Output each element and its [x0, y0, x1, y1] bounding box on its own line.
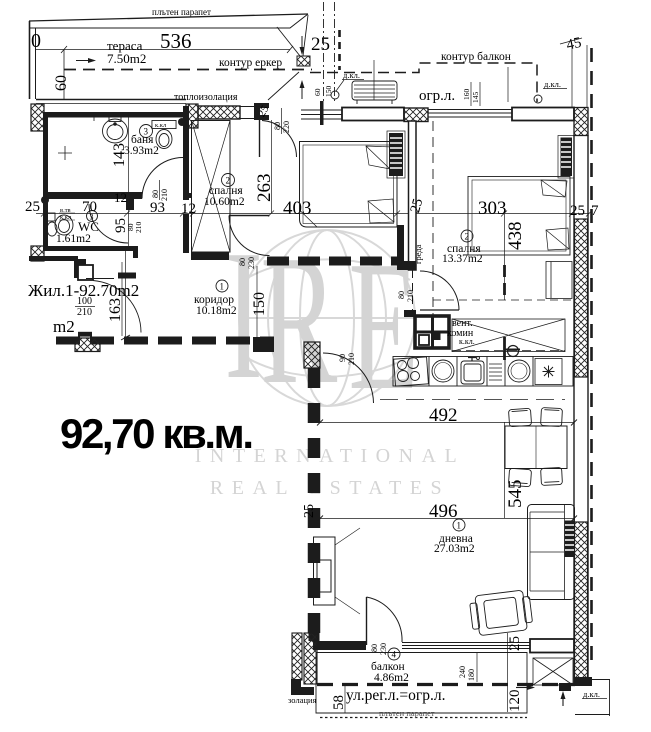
svg-text:греда: греда	[413, 244, 423, 264]
svg-text:4: 4	[392, 650, 397, 660]
svg-text:7: 7	[591, 203, 599, 219]
svg-text:контур балкон: контур балкон	[441, 51, 511, 63]
svg-text:3.93m2: 3.93m2	[124, 145, 159, 157]
svg-text:95: 95	[113, 218, 129, 233]
svg-text:80: 80	[273, 122, 282, 130]
svg-text:25: 25	[302, 504, 317, 518]
svg-text:70: 70	[82, 199, 97, 215]
svg-text:58: 58	[331, 695, 347, 710]
svg-text:143: 143	[111, 143, 128, 167]
svg-text:д.кл.: д.кл.	[583, 689, 600, 699]
svg-text:10.18m2: 10.18m2	[196, 305, 237, 317]
svg-text:150: 150	[324, 86, 333, 98]
svg-text:27.03m2: 27.03m2	[434, 543, 475, 555]
svg-text:210: 210	[406, 290, 415, 302]
svg-text:60: 60	[313, 88, 322, 96]
svg-text:92,70 кв.м.: 92,70 кв.м.	[60, 410, 252, 457]
svg-text:230: 230	[379, 643, 388, 655]
svg-text:д.кл.: д.кл.	[544, 79, 561, 89]
svg-text:438: 438	[505, 222, 526, 251]
svg-text:12: 12	[181, 201, 196, 217]
svg-text:контур еркер: контур еркер	[219, 57, 282, 69]
svg-text:545: 545	[505, 480, 526, 509]
svg-text:плътен парапет: плътен парапет	[379, 708, 435, 718]
svg-text:180: 180	[467, 669, 476, 681]
svg-text:1: 1	[220, 282, 225, 292]
svg-text:топлоизолация: топлоизолация	[174, 92, 238, 103]
svg-text:огр.л.: огр.л.	[419, 88, 455, 104]
svg-text:4.86m2: 4.86m2	[374, 672, 409, 684]
svg-text:1: 1	[457, 521, 462, 531]
svg-text:80: 80	[370, 644, 379, 652]
svg-text:m2: m2	[53, 317, 75, 336]
svg-text:12: 12	[114, 190, 127, 205]
svg-text:160: 160	[462, 89, 471, 101]
svg-text:REAL ESTATES: REAL ESTATES	[210, 477, 450, 499]
svg-text:10.60m2: 10.60m2	[204, 196, 245, 208]
svg-text:2: 2	[226, 176, 231, 186]
svg-text:150: 150	[251, 292, 268, 316]
svg-text:7.50m2: 7.50m2	[107, 51, 146, 66]
svg-text:145: 145	[471, 92, 480, 104]
svg-text:0: 0	[31, 30, 41, 52]
svg-text:25: 25	[25, 199, 40, 215]
svg-text:WC: WC	[78, 219, 99, 234]
svg-text:210: 210	[134, 222, 143, 234]
svg-text:к.кл.: к.кл.	[459, 337, 475, 346]
svg-text:210: 210	[347, 353, 356, 365]
svg-text:д.кл.: д.кл.	[343, 70, 360, 80]
svg-text:120: 120	[507, 690, 523, 713]
svg-text:240: 240	[458, 666, 467, 678]
svg-text:к.кл: к.кл	[155, 122, 167, 129]
svg-text:плътен парапет: плътен парапет	[152, 7, 211, 17]
svg-text:25: 25	[311, 34, 330, 55]
svg-text:210: 210	[77, 307, 92, 318]
svg-text:403: 403	[283, 198, 312, 219]
svg-text:80: 80	[151, 190, 160, 198]
svg-text:золация: золация	[288, 695, 317, 705]
svg-text:80: 80	[397, 291, 406, 299]
svg-text:80: 80	[238, 258, 247, 266]
svg-text:25: 25	[570, 203, 585, 219]
svg-text:ул.рег.л.=огр.л.: ул.рег.л.=огр.л.	[346, 687, 446, 704]
svg-text:90: 90	[338, 354, 347, 362]
svg-text:303: 303	[478, 198, 507, 219]
svg-text:220: 220	[282, 121, 291, 133]
svg-text:25: 25	[507, 636, 523, 651]
svg-text:1.61m2: 1.61m2	[56, 233, 91, 245]
svg-text:100: 100	[77, 296, 92, 307]
svg-text:R: R	[260, 217, 337, 423]
svg-text:60: 60	[53, 75, 70, 91]
svg-text:163: 163	[107, 298, 124, 322]
svg-text:230: 230	[247, 257, 256, 269]
